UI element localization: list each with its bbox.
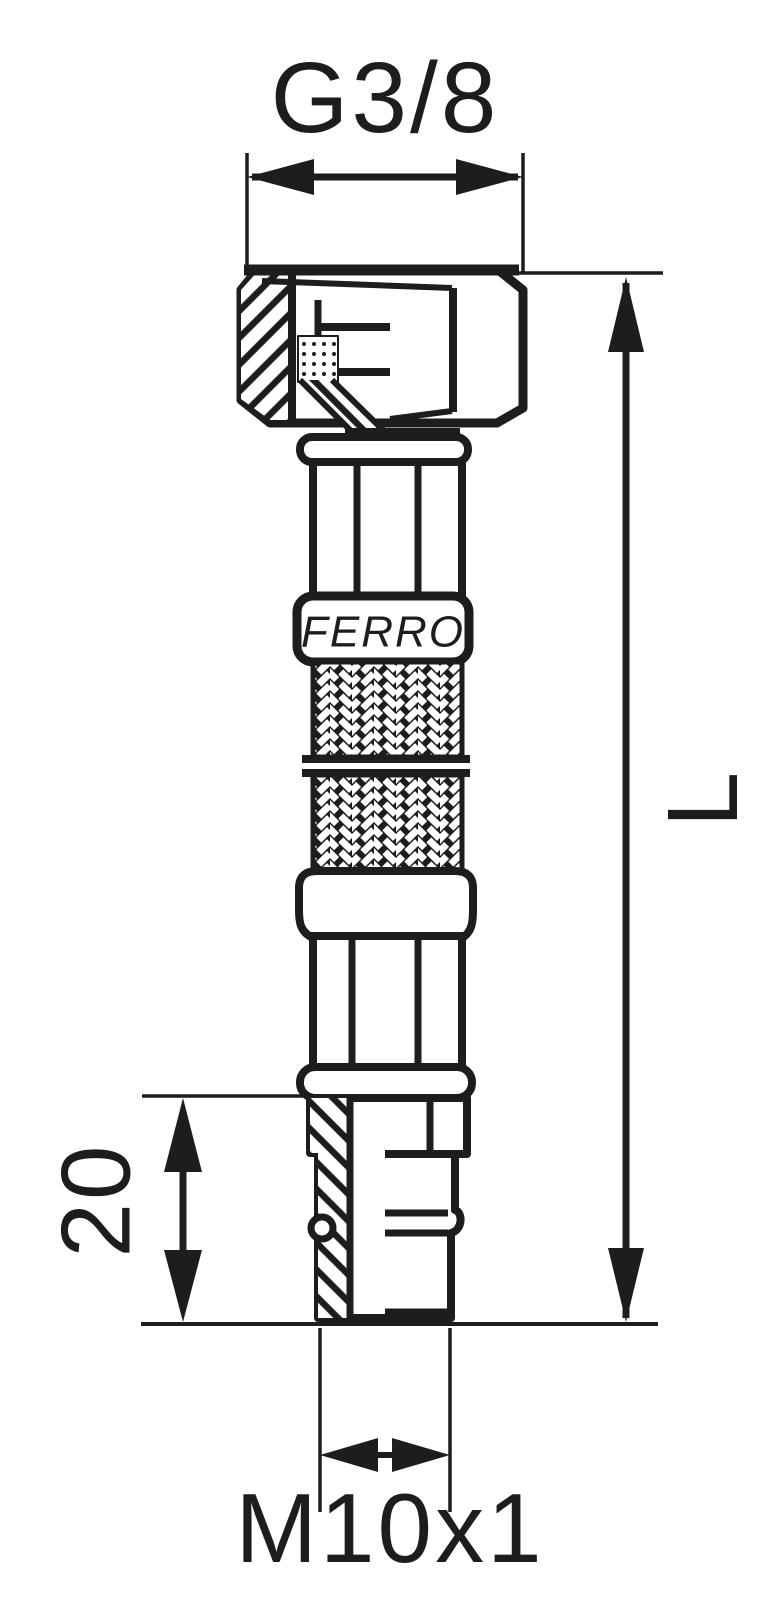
technical-drawing-svg: G3/8 L 20 M10x1 xyxy=(0,0,778,1600)
braid-segment-upper xyxy=(313,662,462,757)
technical-drawing-page: G3/8 L 20 M10x1 xyxy=(0,0,778,1600)
arrowhead-down-icon xyxy=(608,1248,644,1322)
length-label: L xyxy=(647,769,759,828)
dimension-top-thread xyxy=(247,153,523,273)
arrowhead-down-icon xyxy=(164,1250,202,1322)
top-thread-label: G3/8 xyxy=(271,42,500,154)
arrowhead-left-icon xyxy=(320,1438,378,1472)
dimension-length xyxy=(500,273,663,1322)
top-nut xyxy=(241,269,523,432)
arrowhead-right-icon xyxy=(456,159,523,195)
crimp-shoulder xyxy=(299,871,473,938)
lower-crimp-sleeve xyxy=(299,871,473,1098)
arrowhead-left-icon xyxy=(247,159,314,195)
nut-section-hatch xyxy=(241,271,288,420)
male-fitting xyxy=(310,1098,467,1318)
arrowhead-up-icon xyxy=(164,1098,202,1172)
arrowhead-up-icon xyxy=(608,277,644,352)
braid-segment-lower xyxy=(313,775,462,871)
braided-hose xyxy=(302,662,470,871)
upper-crimp-sleeve xyxy=(300,437,468,596)
brand-label: FERRO xyxy=(301,607,465,656)
brand-band: FERRO xyxy=(297,596,469,662)
tail-length-label: 20 xyxy=(40,1142,150,1257)
sleeve-body xyxy=(313,462,462,596)
gasket-seal xyxy=(298,336,338,382)
o-ring xyxy=(311,1217,333,1239)
sleeve-body xyxy=(313,936,462,1068)
dimension-tail-length xyxy=(142,1096,305,1322)
collar-band xyxy=(300,1067,472,1098)
bottom-thread-label: M10x1 xyxy=(235,1473,544,1583)
arrowhead-right-icon xyxy=(392,1438,450,1472)
